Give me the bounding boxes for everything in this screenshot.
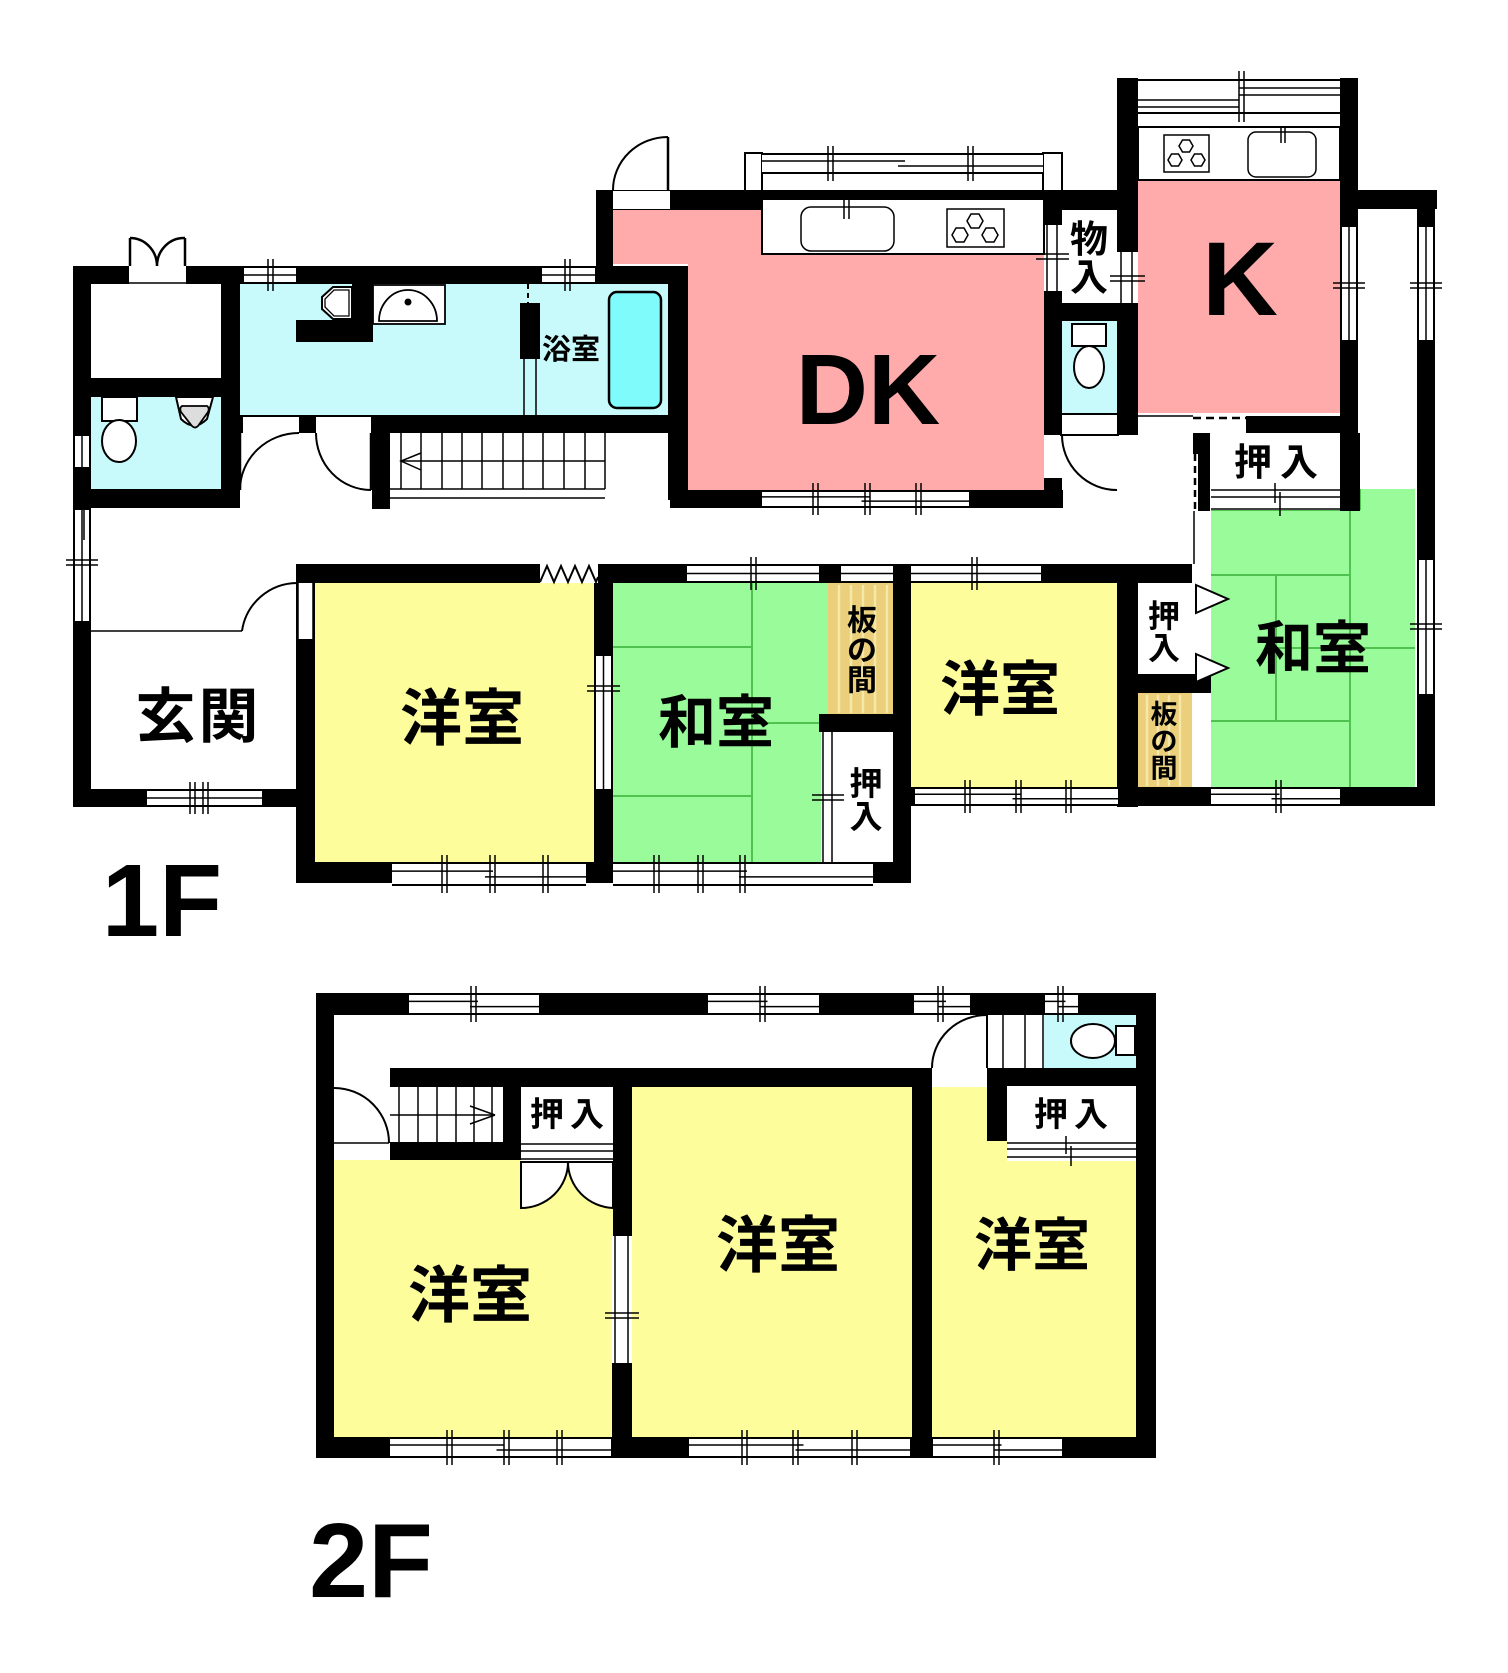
svg-text:DK: DK — [796, 334, 940, 446]
svg-text:K: K — [1202, 221, 1278, 338]
svg-text:2F: 2F — [309, 1502, 433, 1620]
svg-text:1F: 1F — [102, 843, 222, 958]
